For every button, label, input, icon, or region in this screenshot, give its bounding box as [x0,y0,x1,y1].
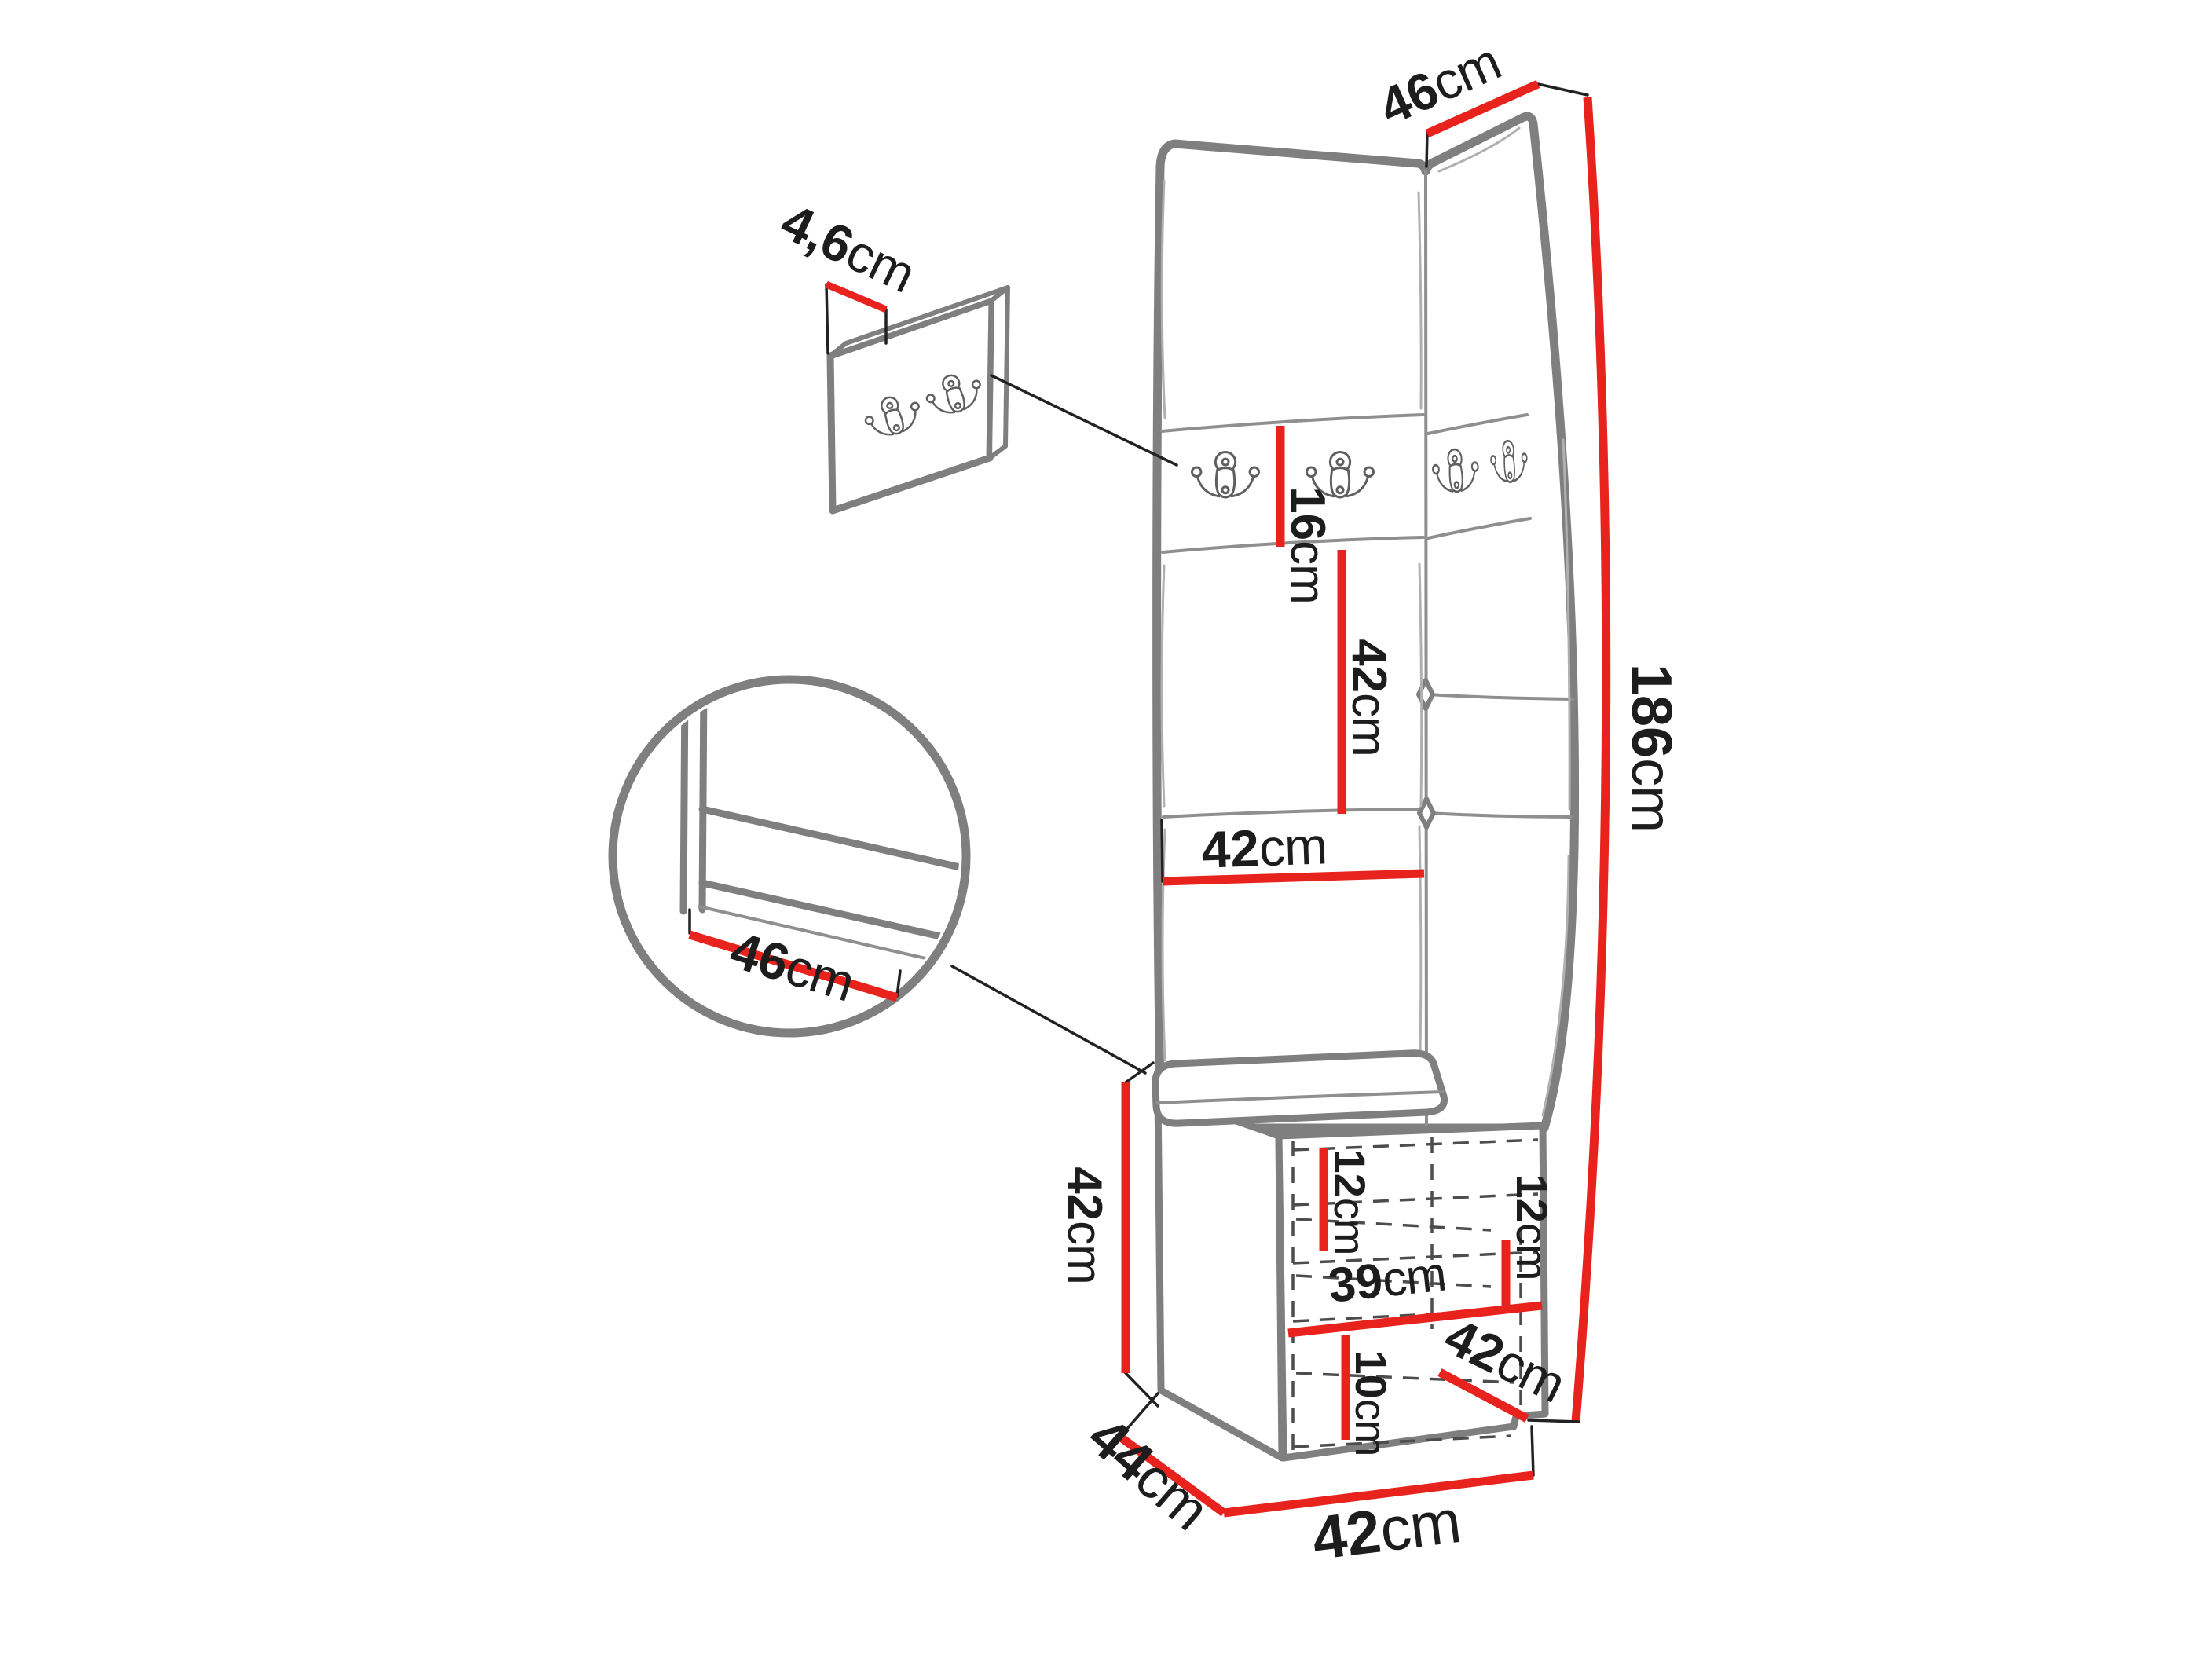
background [0,0,2212,1659]
dimension-label-bottom-shelf-spacing: 10cm [1346,1350,1396,1456]
dimension-label-mid-panel-height: 42cm [1342,639,1396,756]
wardrobe-corner-unit [1157,116,1575,1128]
bench-seat-cushion [1155,1053,1445,1123]
dimension-label-upper-shelf-spacing: 12cm [1325,1149,1375,1255]
wall-panel-side-edge [990,287,1008,458]
dimension-label-cabinet-height: 42cm [1057,1166,1111,1284]
wardrobe-silhouette [1157,116,1575,1128]
dimension-label-hook-strip-height: 16cm [1280,486,1335,604]
upholstery-line [1419,826,1421,1057]
extension-line [1529,1420,1579,1422]
diagram-svg: 4,6cm 46cm 16cm 42cm 42cm 186cm 42cm 12c… [0,0,2212,1659]
cushion-outline [1155,1053,1445,1123]
extension-line [1426,132,1427,167]
dimension-label-right-shelf-spacing: 12cm [1507,1174,1557,1280]
corner-seam [1426,171,1426,1126]
extension-line [1532,1426,1533,1475]
dimension-label-total-height: 186cm [1620,664,1683,832]
dimension-label-panel-width: 42cm [1200,816,1328,879]
extension-line [1162,820,1163,881]
extension-line [826,284,828,353]
furniture-dimension-diagram: 4,6cm 46cm 16cm 42cm 42cm 186cm 42cm 12c… [0,0,2212,1659]
detail-panel-edge [702,682,704,910]
